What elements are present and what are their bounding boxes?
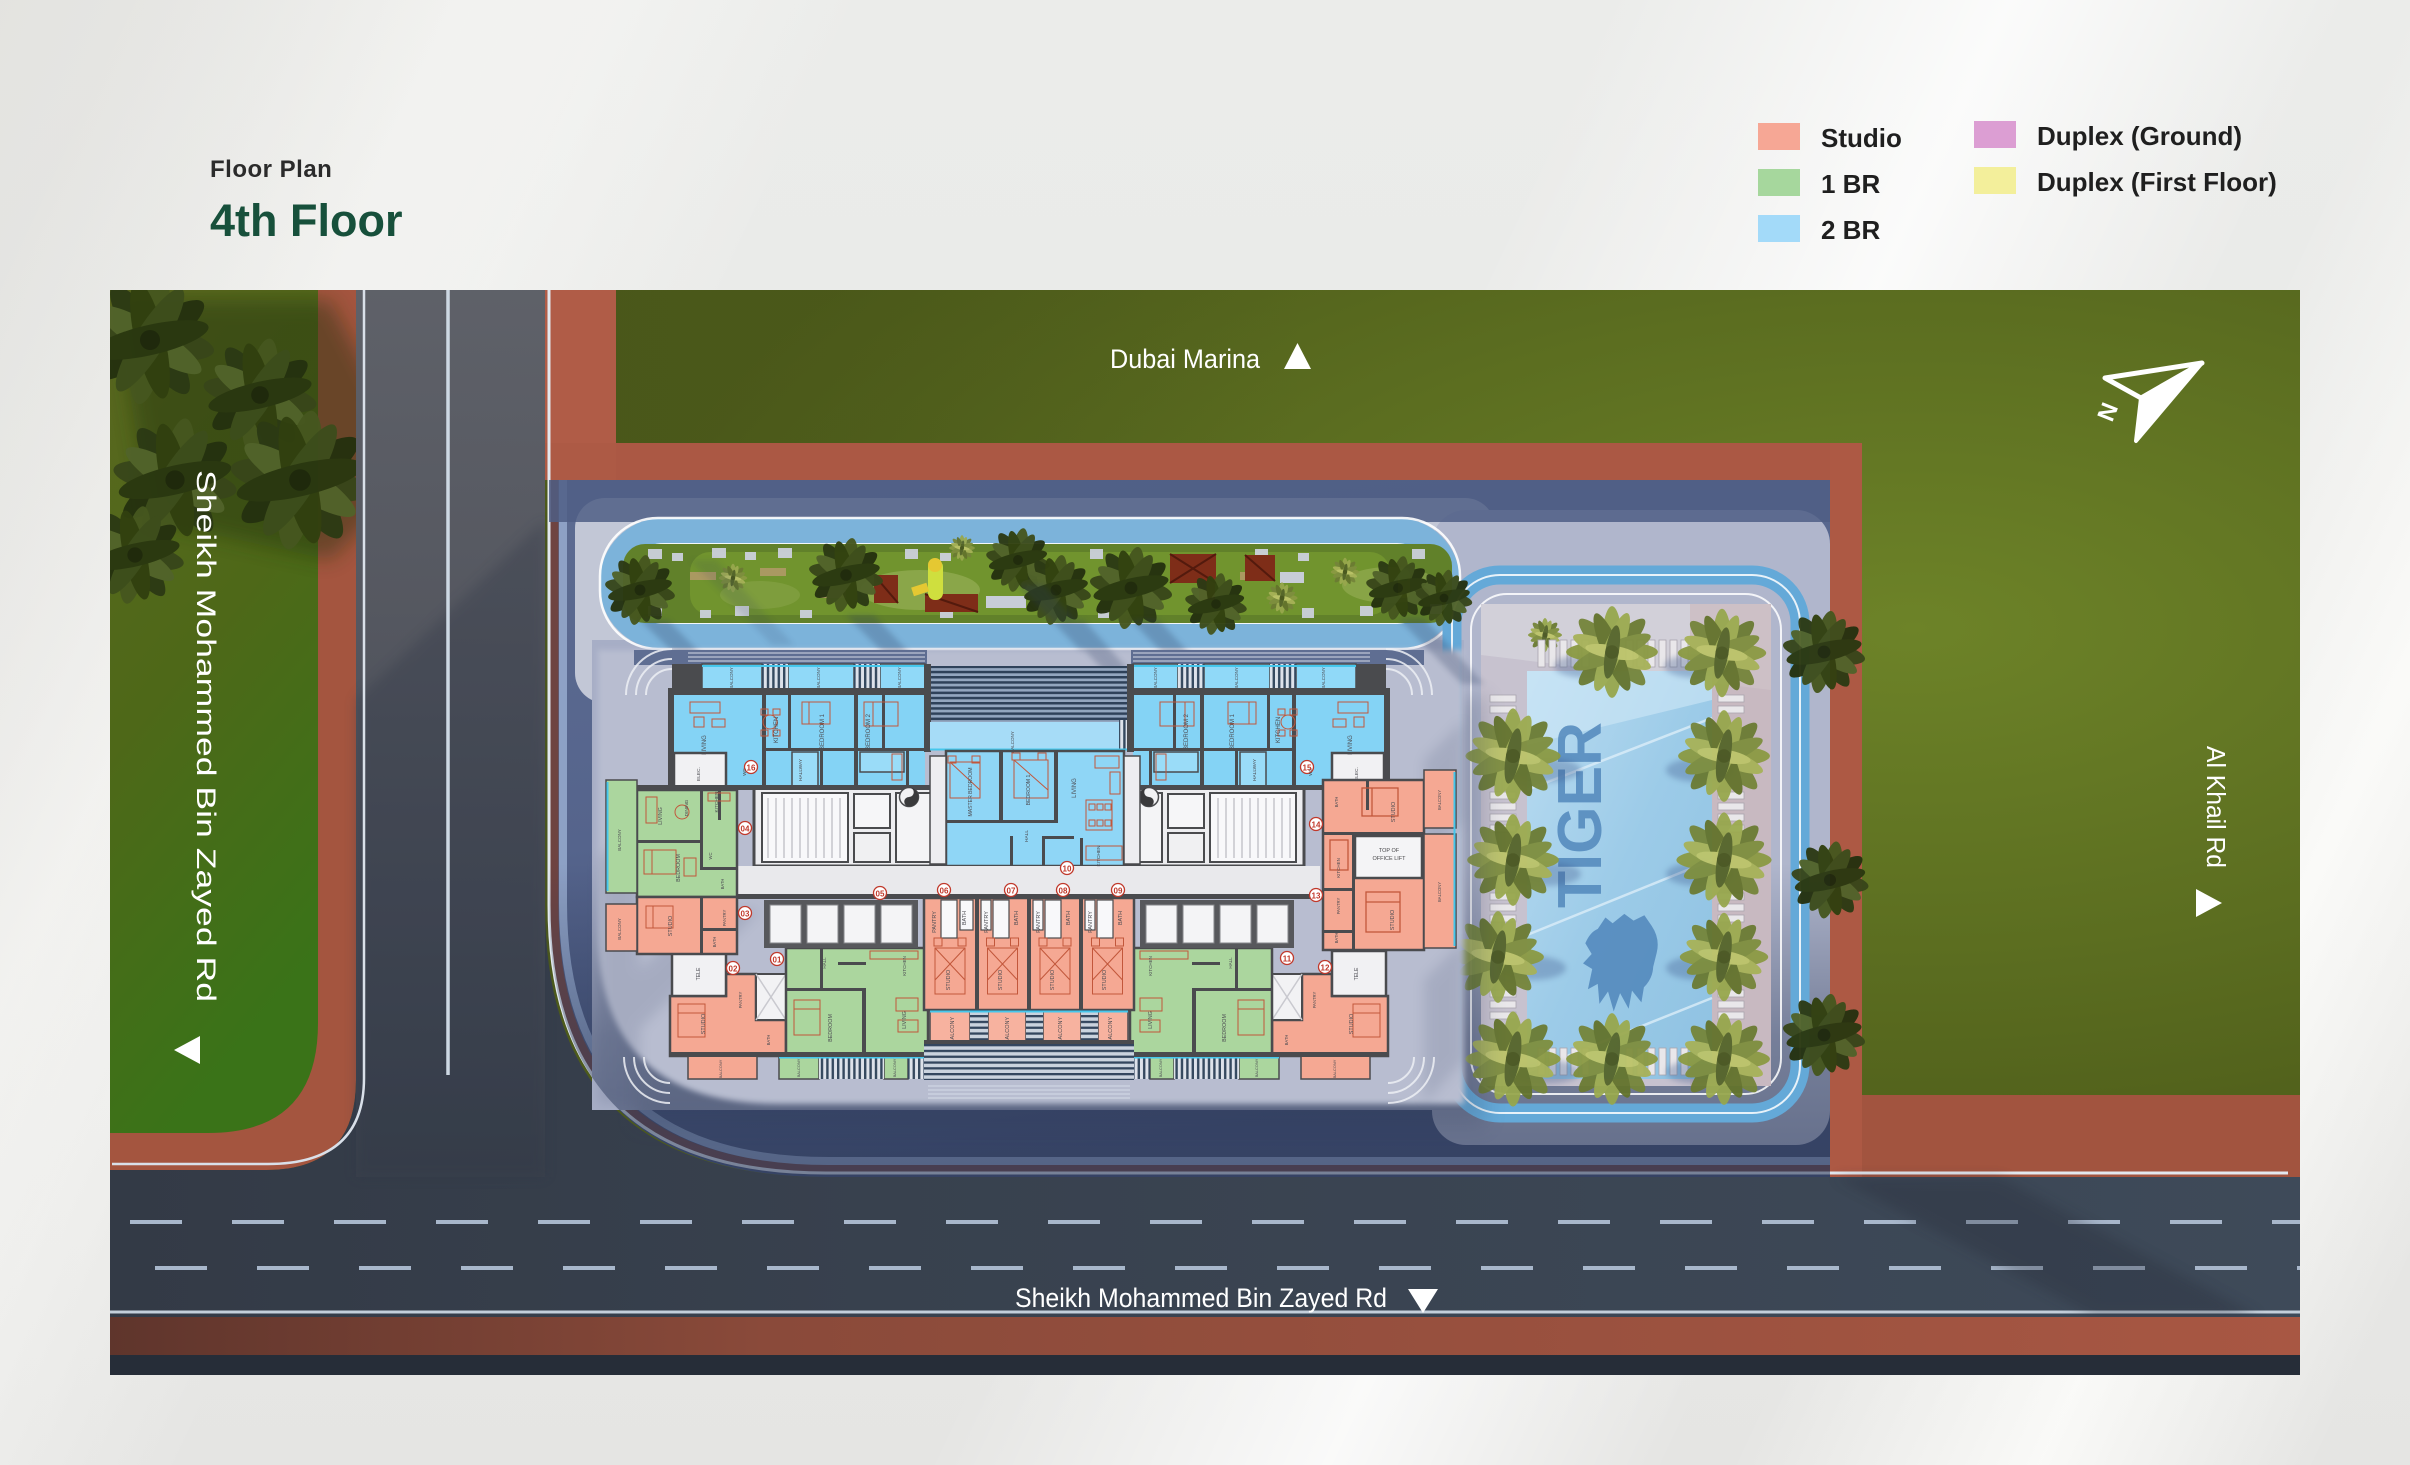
svg-text:LIVING: LIVING — [658, 807, 664, 825]
svg-text:BATH: BATH — [1014, 911, 1020, 925]
svg-text:02: 02 — [729, 965, 738, 974]
svg-text:BALCONY: BALCONY — [1005, 1017, 1011, 1044]
svg-text:STUDIO: STUDIO — [1390, 910, 1396, 930]
svg-text:BALCONY: BALCONY — [1153, 667, 1158, 689]
svg-text:05: 05 — [876, 890, 885, 899]
svg-text:PANTRY: PANTRY — [738, 991, 743, 1008]
svg-text:WC: WC — [1308, 768, 1313, 776]
svg-text:PANTRY: PANTRY — [984, 911, 990, 933]
svg-text:BEDROOM: BEDROOM — [828, 1014, 834, 1042]
svg-text:HALLWAY: HALLWAY — [1252, 758, 1258, 781]
svg-text:BEDROOM: BEDROOM — [676, 854, 682, 882]
svg-text:HALL: HALL — [1024, 830, 1030, 842]
svg-text:STUDIO: STUDIO — [946, 970, 952, 990]
svg-text:ELEC.: ELEC. — [696, 767, 702, 781]
svg-text:LIVING: LIVING — [1072, 778, 1078, 798]
svg-text:BALCONY: BALCONY — [1321, 667, 1326, 689]
svg-text:BATH: BATH — [766, 1035, 771, 1046]
svg-text:16: 16 — [747, 764, 756, 773]
svg-text:PANTRY: PANTRY — [1336, 897, 1341, 914]
svg-text:BALCONY: BALCONY — [1108, 1017, 1114, 1044]
svg-text:BALCONY: BALCONY — [617, 829, 622, 851]
svg-text:KITCHEN: KITCHEN — [902, 956, 907, 976]
svg-text:BATH: BATH — [1334, 797, 1339, 808]
svg-text:LIVING: LIVING — [702, 735, 708, 755]
svg-text:BALCONY: BALCONY — [1010, 731, 1015, 753]
svg-text:11: 11 — [1283, 955, 1292, 964]
svg-text:OFFICE LIFT: OFFICE LIFT — [1373, 856, 1407, 862]
svg-text:BATH: BATH — [1118, 911, 1124, 925]
svg-text:BALCONY: BALCONY — [1158, 1058, 1163, 1077]
svg-text:BEDROOM: BEDROOM — [1222, 1014, 1228, 1042]
svg-text:10: 10 — [1063, 865, 1072, 874]
svg-text:KITCHEN: KITCHEN — [1148, 956, 1153, 976]
svg-text:PANTRY: PANTRY — [722, 909, 727, 926]
svg-text:KITCHEN: KITCHEN — [1096, 845, 1102, 867]
svg-text:DINING: DINING — [684, 799, 690, 816]
svg-text:BALCONY: BALCONY — [796, 1058, 801, 1077]
svg-text:Duplex (Ground): Duplex (Ground) — [2037, 121, 2242, 151]
svg-text:BEDROOM 1: BEDROOM 1 — [1230, 713, 1236, 750]
svg-text:KITCHEN: KITCHEN — [1276, 717, 1282, 743]
svg-text:08: 08 — [1059, 887, 1068, 896]
svg-text:TELE: TELE — [696, 967, 702, 980]
svg-text:01: 01 — [773, 956, 782, 965]
svg-text:BALCONY: BALCONY — [816, 667, 821, 689]
svg-text:HALLWAY: HALLWAY — [798, 758, 804, 781]
svg-text:STUDIO: STUDIO — [701, 1014, 707, 1034]
svg-text:KITCHEN: KITCHEN — [774, 717, 780, 743]
svg-text:LIVING: LIVING — [1148, 1011, 1154, 1029]
svg-text:Duplex (First Floor): Duplex (First Floor) — [2037, 167, 2277, 197]
svg-text:BATH: BATH — [720, 879, 725, 890]
svg-text:Studio: Studio — [1821, 123, 1902, 153]
svg-text:2 BR: 2 BR — [1821, 215, 1880, 245]
svg-text:Al Khail Rd: Al Khail Rd — [2201, 746, 2231, 868]
svg-text:03: 03 — [741, 910, 750, 919]
svg-text:STUDIO: STUDIO — [668, 916, 674, 936]
svg-text:HALL: HALL — [822, 957, 827, 969]
svg-text:BEDROOM 1: BEDROOM 1 — [1026, 775, 1032, 806]
svg-text:14: 14 — [1312, 821, 1321, 830]
svg-text:BALCONY: BALCONY — [1058, 1017, 1064, 1044]
svg-text:BATH: BATH — [1066, 911, 1072, 925]
svg-text:KITCHEN: KITCHEN — [714, 791, 720, 813]
svg-text:Dubai Marina: Dubai Marina — [1110, 344, 1261, 374]
svg-text:HALL: HALL — [1228, 957, 1233, 969]
svg-text:Sheikh Mohammed Bin Zayed Rd: Sheikh Mohammed Bin Zayed Rd — [1015, 1283, 1387, 1313]
svg-text:07: 07 — [1007, 887, 1016, 896]
svg-text:WC: WC — [708, 853, 713, 860]
svg-text:KITCHEN: KITCHEN — [1336, 858, 1341, 878]
svg-text:BEDROOM 2: BEDROOM 2 — [1184, 713, 1190, 750]
svg-text:ELEC.: ELEC. — [1354, 767, 1360, 781]
svg-text:12: 12 — [1321, 964, 1330, 973]
svg-text:BALCONY: BALCONY — [1437, 882, 1442, 902]
svg-text:BALCONY: BALCONY — [1234, 667, 1239, 689]
svg-text:STUDIO: STUDIO — [1102, 970, 1108, 990]
svg-text:BALCONY: BALCONY — [718, 1059, 723, 1078]
svg-text:04: 04 — [741, 825, 750, 834]
svg-text:WC: WC — [742, 768, 747, 776]
svg-text:PANTRY: PANTRY — [1088, 911, 1094, 933]
svg-text:BALCONY: BALCONY — [897, 667, 902, 689]
svg-text:BATH: BATH — [1284, 1035, 1289, 1046]
svg-text:TOP OF: TOP OF — [1379, 848, 1400, 854]
svg-text:BALCONY: BALCONY — [729, 667, 734, 689]
svg-text:BALCONY: BALCONY — [617, 918, 622, 940]
svg-text:BALCONY: BALCONY — [1437, 790, 1442, 810]
svg-text:BATH: BATH — [962, 911, 968, 925]
svg-text:1 BR: 1 BR — [1821, 169, 1880, 199]
svg-text:PANTRY: PANTRY — [932, 911, 938, 933]
svg-text:13: 13 — [1312, 892, 1321, 901]
svg-text:PANTRY: PANTRY — [1312, 991, 1317, 1008]
svg-text:STUDIO: STUDIO — [1391, 802, 1397, 822]
svg-text:STUDIO: STUDIO — [998, 970, 1004, 990]
svg-text:STUDIO: STUDIO — [1349, 1014, 1355, 1034]
svg-text:06: 06 — [940, 887, 949, 896]
svg-text:BATH: BATH — [712, 937, 717, 948]
svg-text:STUDIO: STUDIO — [1050, 970, 1056, 990]
svg-text:BALCONY: BALCONY — [950, 1017, 956, 1044]
svg-text:BALCONY: BALCONY — [892, 1058, 897, 1077]
svg-text:BALCONY: BALCONY — [1332, 1059, 1337, 1078]
svg-text:09: 09 — [1114, 887, 1123, 896]
svg-text:BATH: BATH — [1334, 933, 1339, 944]
svg-text:TELE: TELE — [1354, 967, 1360, 980]
svg-text:MASTER BEDROOM: MASTER BEDROOM — [968, 768, 974, 817]
svg-text:Floor Plan: Floor Plan — [210, 156, 332, 183]
svg-text:Sheikh Mohammed Bin Zayed Rd: Sheikh Mohammed Bin Zayed Rd — [191, 470, 221, 1002]
svg-text:4th Floor: 4th Floor — [210, 195, 402, 246]
svg-text:BALCONY: BALCONY — [1254, 1058, 1259, 1077]
svg-text:LIVING: LIVING — [902, 1011, 908, 1029]
svg-text:PANTRY: PANTRY — [1036, 911, 1042, 933]
svg-text:BEDROOM 1: BEDROOM 1 — [820, 713, 826, 750]
svg-text:BEDROOM 2: BEDROOM 2 — [866, 713, 872, 750]
svg-text:LIVING: LIVING — [1348, 735, 1354, 755]
